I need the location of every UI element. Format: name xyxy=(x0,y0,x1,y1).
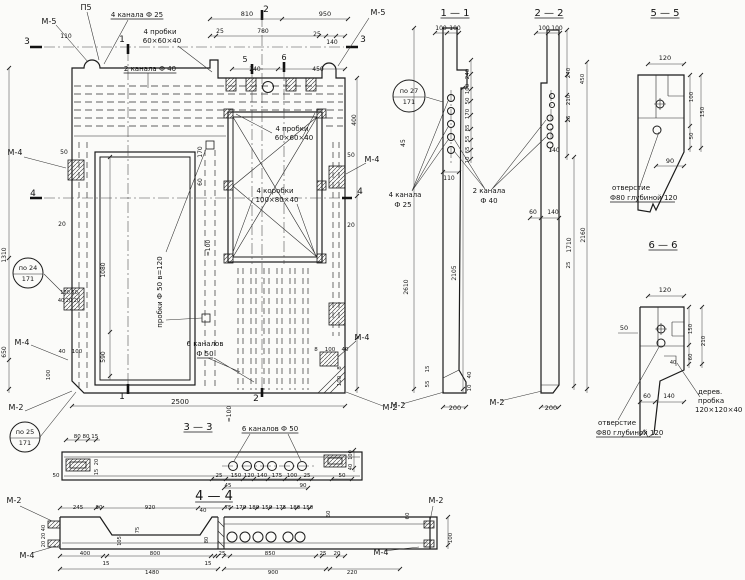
mark-m4-left-lower: М-4 xyxy=(15,338,30,347)
dim-label: ≈100 xyxy=(205,240,212,257)
dim-label: 40 xyxy=(59,349,66,355)
dim-label: 60 xyxy=(643,393,651,400)
callout-po27: по 27 xyxy=(400,87,419,95)
dim-label: 100 xyxy=(337,375,343,386)
dim-label: 15 xyxy=(103,561,110,567)
dim-label: 150 xyxy=(231,473,242,479)
mark-m4-44-right: М-4 xyxy=(374,548,389,557)
dim-label: 50 xyxy=(620,324,628,332)
dim-label: 920 xyxy=(145,505,156,511)
dim-label: 100 xyxy=(348,450,354,460)
dim-label: 75 xyxy=(225,505,232,511)
dim-label: 25 xyxy=(216,473,223,479)
dim-label: 40 xyxy=(200,508,207,514)
mark-m5-top-right: М-5 xyxy=(371,8,386,17)
dim-label: 60×60×40 xyxy=(143,37,181,45)
dim-label: 90 xyxy=(96,505,103,511)
cut-mark-3-right: 3 xyxy=(360,35,366,45)
dim-label: 40 xyxy=(342,347,349,353)
dim-label: 20 xyxy=(334,551,341,557)
dim-label: 140 xyxy=(326,39,338,46)
section-title-2-2: 2 — 2 xyxy=(534,8,563,19)
cut-mark-5: 5 xyxy=(242,55,247,64)
dim-label: 40 20 20 xyxy=(58,298,80,304)
dim-label: 100 xyxy=(325,347,336,353)
section-3-3 xyxy=(62,452,362,480)
dim-label: 8 xyxy=(337,366,343,370)
dim-label: 2105 xyxy=(451,265,458,280)
dim-label: 650 xyxy=(1,346,8,358)
dim-label: 140 xyxy=(548,147,560,154)
dim-label: 20 xyxy=(58,221,66,228)
callout-circle-po25 xyxy=(10,422,40,452)
note-4-channels-f25: 4 канала Ф 25 xyxy=(111,11,163,19)
embed-bottom-right xyxy=(320,352,338,366)
dim-label: 150 xyxy=(688,323,694,334)
dim-label: 170 xyxy=(197,146,204,158)
dim-label: 171 xyxy=(22,275,34,283)
dim-label: 140 xyxy=(663,393,675,400)
note-otverstie-66: отверстие xyxy=(598,419,636,427)
dim-label: 100 xyxy=(449,25,461,32)
plug-f50-lower xyxy=(202,314,210,322)
dim-label: 60 xyxy=(405,512,411,519)
dim-label: 1710 xyxy=(566,237,573,252)
dim-label: 15 xyxy=(425,365,431,372)
dim-label: 150 xyxy=(700,106,706,117)
dim-label: 100 xyxy=(46,369,52,380)
dim-label: 100 xyxy=(435,25,447,32)
dim-label: 25 xyxy=(304,473,311,479)
dim-label: 100 xyxy=(448,532,454,543)
dim-label: 170 xyxy=(236,505,247,511)
dim-label: 170 xyxy=(465,108,471,119)
dim-label: 200 xyxy=(449,404,461,412)
dim-label: 25 xyxy=(313,31,321,38)
dim-label: 210 xyxy=(701,335,707,346)
section-title-5-5: 5 — 5 xyxy=(650,8,679,19)
plug-f50-upper xyxy=(206,141,214,149)
cut-mark-1-top: 1 xyxy=(119,35,125,45)
mark-m2-sec22: М-2 xyxy=(490,398,505,407)
mark-m4-left-upper: М-4 xyxy=(8,148,23,157)
dim-label: 50 xyxy=(689,132,695,139)
dim-label: 220 xyxy=(347,570,358,576)
dim-label: 25 xyxy=(566,115,572,122)
note-6-channels-facade: 6 каналов xyxy=(187,340,224,348)
dim-label: 240 xyxy=(249,66,261,73)
dim-label: 2500 xyxy=(171,398,189,406)
note-4-korobki: 4 коробки xyxy=(256,187,293,195)
dim-label: 400 xyxy=(351,114,358,126)
dim-label: 245 xyxy=(73,505,84,511)
dim-label: 800 xyxy=(150,551,161,557)
cut-mark-6: 6 xyxy=(281,53,286,62)
dim-label: 10 xyxy=(467,384,473,391)
section-1-1 xyxy=(443,28,467,393)
cut-mark-1-bottom: 1 xyxy=(119,392,125,402)
dim-label: 80 80 15 xyxy=(74,434,99,440)
dim-label: 2160 xyxy=(580,227,587,242)
mark-m4-44-left: М-4 xyxy=(20,551,35,560)
mark-m2-44-right: М-2 xyxy=(429,496,444,505)
dim-label: 450 xyxy=(580,73,586,84)
dim-label: 810 xyxy=(241,10,253,18)
callout-po24: по 24 xyxy=(19,264,38,272)
embed-m4-left-upper xyxy=(68,160,84,180)
dim-label: 200 xyxy=(545,404,557,412)
dim-label: 850 xyxy=(265,551,276,557)
note-probki-f50: пробки Ф 50 в=120 xyxy=(156,256,164,327)
mark-m2-44-left: М-2 xyxy=(7,496,22,505)
dim-label: Ф80 глубиной 120 xyxy=(610,194,677,202)
dim-label: 50 xyxy=(60,149,68,156)
leader-lines xyxy=(20,12,700,553)
dim-label: 100×80×40 xyxy=(256,196,299,204)
dim-label: 90 xyxy=(666,157,674,165)
dim-label: 60 xyxy=(326,510,332,517)
dim-label: 20 xyxy=(41,533,47,539)
dim-label: Ф80 глубиной 120 xyxy=(596,429,663,437)
drawing-canvas: М-5П54 канала Ф 25110314 пробки60×60×402… xyxy=(0,0,745,580)
dim-label: 20 xyxy=(94,459,100,465)
dim-label: 150 xyxy=(303,505,314,511)
dim-label: Ф 50 xyxy=(196,350,213,358)
dim-label: 1480 xyxy=(145,570,159,576)
dim-label: 25 xyxy=(566,261,572,268)
dim-label: 100 xyxy=(465,83,471,94)
dim-label: 25 xyxy=(219,551,226,557)
dim-label: 450 xyxy=(312,66,324,73)
drawing-sheet: М-5П54 канала Ф 25110314 пробки60×60×402… xyxy=(0,0,745,580)
cut-mark-2-top: 2 xyxy=(263,5,269,15)
dim-label: 40 xyxy=(467,371,473,378)
dim-label: Ф 40 xyxy=(480,197,497,205)
dimension-lines xyxy=(7,17,704,571)
dim-label: 50 xyxy=(465,97,471,104)
dim-label: 180 xyxy=(290,505,301,511)
dim-label: 60 xyxy=(688,353,694,360)
dim-label: 40 xyxy=(670,360,676,366)
dim-label: 175 xyxy=(276,505,287,511)
dim-label: 100 50 xyxy=(60,290,78,296)
dim-label: 120 xyxy=(659,286,671,294)
note-2-channels-f40: 2 канала Ф 40 xyxy=(124,65,176,73)
dim-label: 50 xyxy=(347,152,355,159)
dim-label: 100 xyxy=(538,25,550,32)
mark-m4-right-upper: М-4 xyxy=(365,155,380,164)
dim-label: 140 xyxy=(257,473,268,479)
section-title-1-1: 1 — 1 xyxy=(440,8,469,19)
dim-label: 950 xyxy=(319,10,331,18)
cut-mark-4-left: 4 xyxy=(30,189,36,199)
dim-label: 140 xyxy=(547,209,559,216)
dim-label: 120 xyxy=(659,54,671,62)
dim-label: 100 xyxy=(287,473,298,479)
note-4-probki-top: 4 пробки xyxy=(143,28,176,36)
dim-label: 75 xyxy=(135,527,141,533)
cut-mark-3-left: 3 xyxy=(24,37,30,47)
note-2-channels-sec: 2 канала xyxy=(473,187,506,195)
embed-m4-right-lower xyxy=(329,303,345,325)
dim-label: 240 xyxy=(566,67,572,78)
dim-label: 10 xyxy=(465,156,471,163)
dim-label: 120 xyxy=(244,473,255,479)
dim-label: 85 xyxy=(465,124,471,131)
dim-label: 45 xyxy=(400,139,407,147)
dim-label: 180 xyxy=(249,505,260,511)
dim-label: 100 xyxy=(72,349,83,355)
dim-label: 900 xyxy=(268,570,279,576)
dim-label: 55 xyxy=(425,380,431,387)
dim-label: 60 xyxy=(529,209,537,216)
dim-label: 240 xyxy=(465,68,471,79)
mark-m4-right-lower: М-4 xyxy=(355,333,370,342)
dim-label: 50 xyxy=(53,473,60,479)
dim-label: 25 xyxy=(320,551,327,557)
cut-mark-2-bottom: 2 xyxy=(253,394,259,404)
channel-hole xyxy=(263,82,274,93)
dim-label: 2610 xyxy=(403,279,410,294)
dim-label: 60×60×40 xyxy=(275,134,313,142)
note-6-channels-33: 6 каналов Ф 50 xyxy=(242,425,298,433)
dim-label: 105 xyxy=(117,536,123,546)
dim-label: 4 пробки xyxy=(275,125,308,133)
dim-label: 20 xyxy=(41,541,47,547)
dim-label: 15 xyxy=(94,469,100,475)
dim-label: 8 xyxy=(314,347,318,353)
text-labels: М-5П54 канала Ф 25110314 пробки60×60×402… xyxy=(1,3,742,576)
dim-label: 20 xyxy=(347,222,355,229)
mark-m2-sec11: М-2 xyxy=(391,401,406,410)
dim-label: 110 xyxy=(60,33,72,40)
note-otverstie-55: отверстие xyxy=(612,184,650,192)
callout-circle-po27 xyxy=(393,80,425,112)
detail-6-6 xyxy=(640,307,684,437)
dim-label: пробка xyxy=(698,397,724,405)
mark-m5-top-left: М-5 xyxy=(42,17,57,26)
dim-label: 110 xyxy=(443,175,455,182)
dim-label: 90 xyxy=(300,483,307,489)
embed-m4-right-upper xyxy=(329,166,345,188)
callout-circle-po24 xyxy=(13,258,43,288)
mark-p5: П5 xyxy=(80,3,91,12)
callout-po25: по 25 xyxy=(16,428,35,436)
dim-label: 100 xyxy=(551,25,563,32)
mark-m2-bottom-left: М-2 xyxy=(9,403,24,412)
dim-label: 171 xyxy=(403,98,415,106)
dim-label: 25 xyxy=(216,28,224,35)
dim-label: 40 xyxy=(348,464,354,470)
note-derev-probka: дерев. xyxy=(698,388,722,396)
dim-label: ≈100 xyxy=(226,406,233,423)
dim-label: 40 xyxy=(41,525,47,531)
dim-label: 780 xyxy=(257,28,269,35)
dim-label: 1080 xyxy=(100,262,107,277)
dim-label: 210 xyxy=(566,94,572,105)
section-title-6-6: 6 — 6 xyxy=(648,240,677,251)
dim-label: 120×120×40 xyxy=(695,406,742,414)
dim-label: 80 xyxy=(204,537,210,543)
section-4-4 xyxy=(48,517,437,549)
dim-label: 100 xyxy=(689,91,695,102)
dim-label: 150 xyxy=(262,505,273,511)
dim-label: 60 xyxy=(197,178,204,186)
section-title-3-3: 3 — 3 xyxy=(183,422,212,433)
dim-label: Ф 25 xyxy=(394,201,411,209)
dim-label: 175 xyxy=(272,473,283,479)
dim-label: 15 xyxy=(205,561,212,567)
dim-label: 65 xyxy=(465,146,471,153)
dim-label: 171 xyxy=(19,439,31,447)
dim-label: 400 xyxy=(80,551,91,557)
dim-label: 1310 xyxy=(1,247,8,262)
dim-label: 50 xyxy=(339,473,346,479)
dim-label: 55 xyxy=(465,135,471,142)
dim-label: 590 xyxy=(100,351,107,363)
main-facade-view xyxy=(30,10,358,397)
note-4-channels-sec: 4 канала xyxy=(389,191,422,199)
cut-mark-4-right: 4 xyxy=(357,187,363,197)
channels-6xf50 xyxy=(238,268,308,390)
